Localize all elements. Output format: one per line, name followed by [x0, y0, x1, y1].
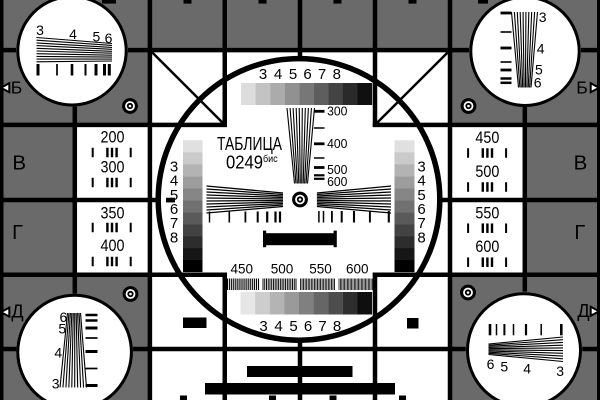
svg-text:5: 5: [289, 318, 297, 335]
svg-text:550: 550: [475, 205, 499, 223]
svg-text:200: 200: [101, 129, 125, 147]
svg-text:400: 400: [101, 237, 125, 255]
svg-text:350: 350: [101, 205, 125, 223]
svg-text:8: 8: [417, 230, 425, 247]
svg-text:600: 600: [346, 262, 369, 277]
svg-text:400: 400: [327, 137, 347, 151]
svg-text:5: 5: [500, 358, 508, 374]
svg-text:6: 6: [304, 318, 312, 335]
svg-text:550: 550: [309, 262, 332, 277]
svg-text:7: 7: [318, 66, 326, 83]
svg-text:4: 4: [274, 318, 282, 335]
svg-text:Д: Д: [11, 302, 23, 322]
svg-text:6: 6: [303, 66, 311, 83]
svg-text:500: 500: [475, 163, 499, 181]
svg-text:4: 4: [523, 360, 531, 376]
svg-text:3: 3: [539, 9, 547, 25]
svg-text:500: 500: [271, 262, 294, 277]
svg-text:4: 4: [537, 41, 545, 57]
svg-text:Б: Б: [576, 78, 587, 98]
svg-text:450: 450: [475, 129, 499, 147]
svg-text:Д: Д: [577, 301, 589, 321]
svg-text:6: 6: [534, 75, 542, 91]
svg-text:300: 300: [327, 104, 347, 118]
svg-text:5: 5: [289, 66, 297, 83]
svg-text:8: 8: [170, 230, 178, 247]
svg-text:3: 3: [259, 318, 267, 335]
svg-text:3: 3: [259, 66, 267, 83]
svg-text:3: 3: [556, 363, 564, 379]
svg-text:В: В: [574, 152, 588, 175]
svg-text:8: 8: [333, 318, 341, 335]
svg-text:7: 7: [318, 318, 326, 335]
svg-text:600: 600: [475, 238, 499, 256]
svg-text:Г: Г: [574, 222, 585, 244]
svg-text:6: 6: [487, 356, 495, 372]
svg-text:450: 450: [231, 262, 254, 277]
svg-text:4: 4: [54, 345, 62, 361]
svg-text:3: 3: [36, 22, 44, 38]
svg-text:4: 4: [274, 66, 282, 83]
svg-text:300: 300: [101, 159, 125, 177]
svg-text:Б: Б: [11, 78, 22, 98]
svg-text:В: В: [12, 152, 26, 175]
svg-text:600: 600: [327, 175, 347, 189]
svg-text:3: 3: [52, 376, 60, 392]
svg-text:8: 8: [333, 66, 341, 83]
svg-text:Г: Г: [12, 222, 23, 244]
